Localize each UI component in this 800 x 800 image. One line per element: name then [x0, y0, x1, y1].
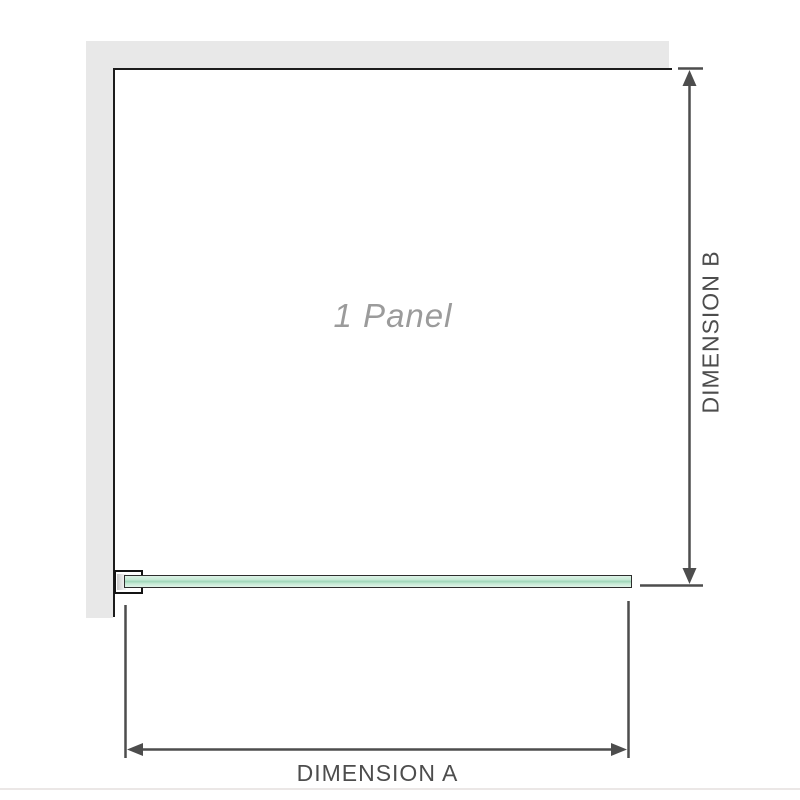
- dimension-a-arrow-left-icon: [127, 743, 143, 756]
- dimension-annotations: [0, 0, 800, 800]
- dimension-b-arrow-up-icon: [683, 70, 697, 86]
- diagram-canvas: 1 Panel DIMENSION A DIMENSION B: [0, 0, 800, 800]
- glass-panel-bar: [124, 575, 632, 588]
- dimension-a-arrow-right-icon: [611, 743, 627, 756]
- dimension-b-arrow-down-icon: [683, 568, 697, 584]
